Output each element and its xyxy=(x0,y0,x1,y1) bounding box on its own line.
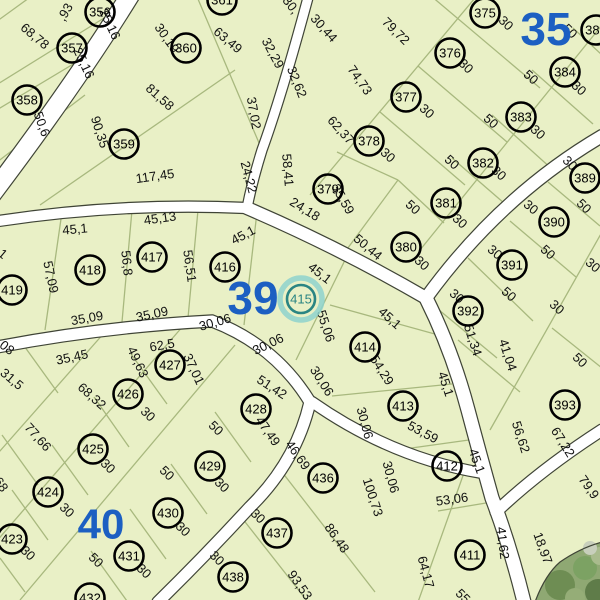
cadastral-map-canvas[interactable]: ,9368,7825,1625,1630,1963,4932,2930,30,4… xyxy=(0,0,600,600)
parcel-number: 375 xyxy=(474,6,496,21)
parcel-number: 419 xyxy=(1,283,23,298)
parcel-number: 424 xyxy=(37,485,59,500)
parcel-number: 418 xyxy=(79,263,101,278)
parcel-number: 380 xyxy=(395,240,417,255)
parcel-number: 378 xyxy=(358,134,380,149)
parcel-number: 430 xyxy=(157,506,179,521)
parcel-number: 438 xyxy=(222,570,244,585)
parcel-number: 391 xyxy=(501,258,523,273)
parcel-number: 425 xyxy=(82,442,104,457)
parcel-number: 432 xyxy=(79,591,101,600)
parcel-number: 426 xyxy=(117,387,139,402)
parcel-number: 411 xyxy=(460,548,481,563)
parcel-number: 376 xyxy=(439,46,461,61)
parcel-number: 428 xyxy=(245,402,267,417)
parcel-number: 390 xyxy=(543,215,565,230)
parcel-number: 358 xyxy=(16,93,38,108)
dimension-label: 58,41 xyxy=(279,153,297,187)
parcel-number: 377 xyxy=(395,90,417,105)
parcel-number: 356 xyxy=(89,5,111,20)
cadastral-map: ,9368,7825,1625,1630,1963,4932,2930,30,4… xyxy=(0,0,600,600)
parcel-number: 385 xyxy=(585,23,600,38)
parcel-number: 416 xyxy=(214,260,236,275)
parcel-number: 392 xyxy=(457,304,479,319)
dimension-label: 45,1 xyxy=(62,220,89,237)
district-number-40: 40 xyxy=(78,501,125,548)
parcel-number: 359 xyxy=(113,137,135,152)
parcel-number: 413 xyxy=(392,399,414,414)
parcel-number: 423 xyxy=(1,532,23,547)
district-number-35: 35 xyxy=(520,3,571,55)
parcel-number: 379 xyxy=(317,182,339,197)
parcel-number: 415 xyxy=(290,292,312,307)
parcel-number: 393 xyxy=(554,398,576,413)
dimension-label: 56,8 xyxy=(118,250,136,277)
parcel-number: 381 xyxy=(435,196,457,211)
parcel-number: 389 xyxy=(574,171,596,186)
district-number-39: 39 xyxy=(227,272,278,324)
parcel-number: 414 xyxy=(354,340,376,355)
parcel-number: 417 xyxy=(141,250,163,265)
parcel-number: 357 xyxy=(61,41,83,56)
parcel-number: 360 xyxy=(175,41,197,56)
parcel-number: 437 xyxy=(266,526,288,541)
parcel-number: 384 xyxy=(554,65,576,80)
parcel-number: 431 xyxy=(118,549,140,564)
parcel-number: 429 xyxy=(199,459,221,474)
parcel-number: 427 xyxy=(159,358,181,373)
parcel-number: 412 xyxy=(436,459,458,474)
parcel-number: 382 xyxy=(472,156,494,171)
parcel-415-marker[interactable]: 415 xyxy=(280,278,322,320)
parcel-number: 436 xyxy=(312,471,334,486)
parcel-number: 361 xyxy=(211,0,233,8)
parcel-number: 383 xyxy=(510,110,532,125)
